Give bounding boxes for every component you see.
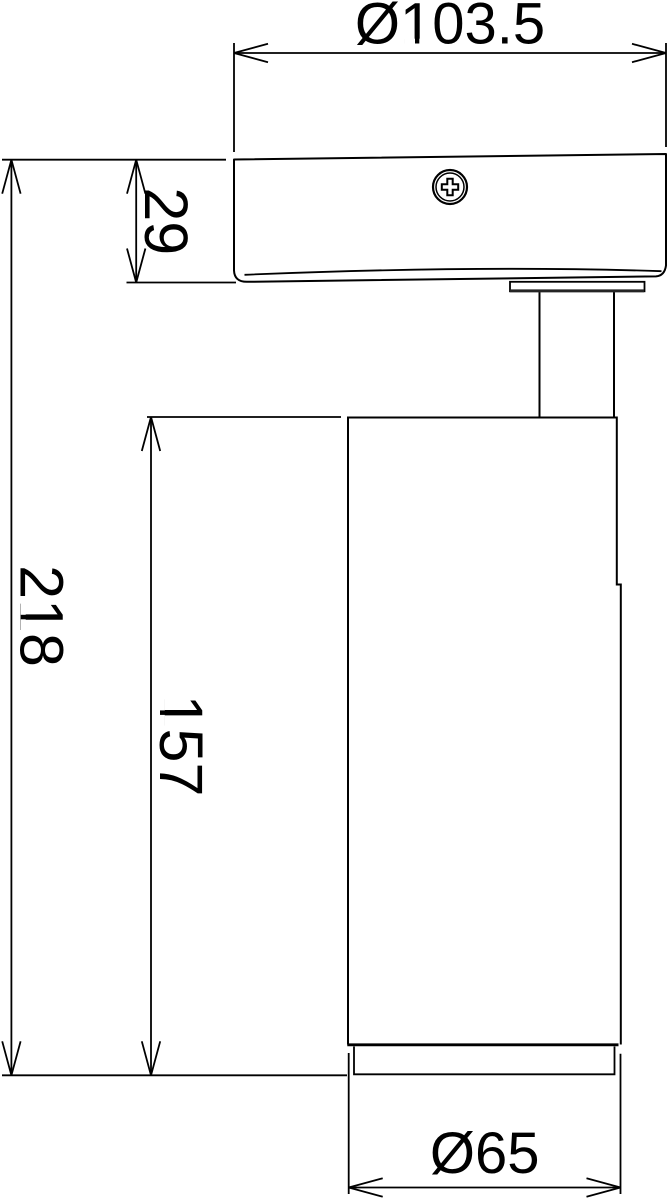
svg-text:29: 29 — [132, 187, 200, 255]
svg-text:Ø103.5: Ø103.5 — [355, 0, 545, 57]
svg-text:157: 157 — [147, 695, 215, 797]
svg-text:Ø65: Ø65 — [430, 1121, 540, 1186]
svg-text:218: 218 — [8, 565, 76, 667]
